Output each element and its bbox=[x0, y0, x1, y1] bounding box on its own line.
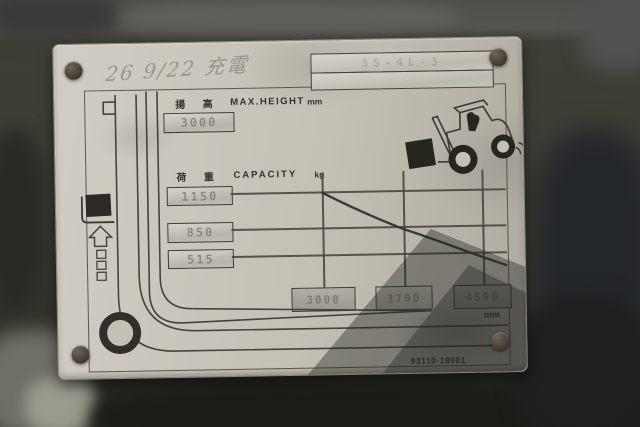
screw-top-left bbox=[64, 62, 82, 80]
max-height-value-box: 3000 bbox=[163, 112, 234, 133]
capacity-value-1: 1150 bbox=[181, 189, 218, 204]
max-height-label-en: MAX.HEIGHT bbox=[230, 96, 305, 108]
background-highlight-bottom-left bbox=[25, 378, 95, 427]
model-number-stamp: 3S-4L-3 bbox=[361, 55, 443, 69]
height-value-1: 3000 bbox=[306, 293, 341, 307]
screw-bottom-left bbox=[71, 346, 89, 364]
screw-top-right bbox=[489, 48, 507, 66]
capacity-value-box-2: 850 bbox=[167, 222, 233, 243]
height-value-box-1: 3000 bbox=[291, 287, 355, 312]
background-blur-left bbox=[0, 130, 45, 310]
background-blur-bottom-right bbox=[515, 295, 640, 427]
capacity-label-en: CAPACITY bbox=[233, 169, 297, 181]
capacity-value-box-1: 1150 bbox=[167, 186, 233, 206]
max-height-label-jp: 揚 高 bbox=[175, 95, 220, 111]
photo-of-forklift-nameplate: 26 9/22 充電 3S-4L-3 揚 高 MAX.HEIGHT mm 300… bbox=[0, 0, 640, 427]
handwritten-note: 26 9/22 充電 bbox=[104, 42, 337, 87]
capacity-value-3: 515 bbox=[187, 252, 215, 266]
capacity-label-jp: 荷 重 bbox=[176, 168, 221, 184]
max-height-unit-label: mm bbox=[307, 96, 322, 106]
max-height-value: 3000 bbox=[180, 115, 217, 130]
background-blur-top-left bbox=[0, 0, 120, 40]
capacity-value-2: 850 bbox=[186, 225, 214, 239]
serial-number-box bbox=[311, 69, 494, 90]
capacity-name-plate: 26 9/22 充電 3S-4L-3 揚 高 MAX.HEIGHT mm 300… bbox=[52, 36, 528, 380]
capacity-value-box-3: 515 bbox=[168, 249, 234, 269]
motion-marks bbox=[515, 141, 527, 155]
background-blur-top-right bbox=[580, 0, 640, 70]
background-blur-top bbox=[120, 2, 460, 32]
